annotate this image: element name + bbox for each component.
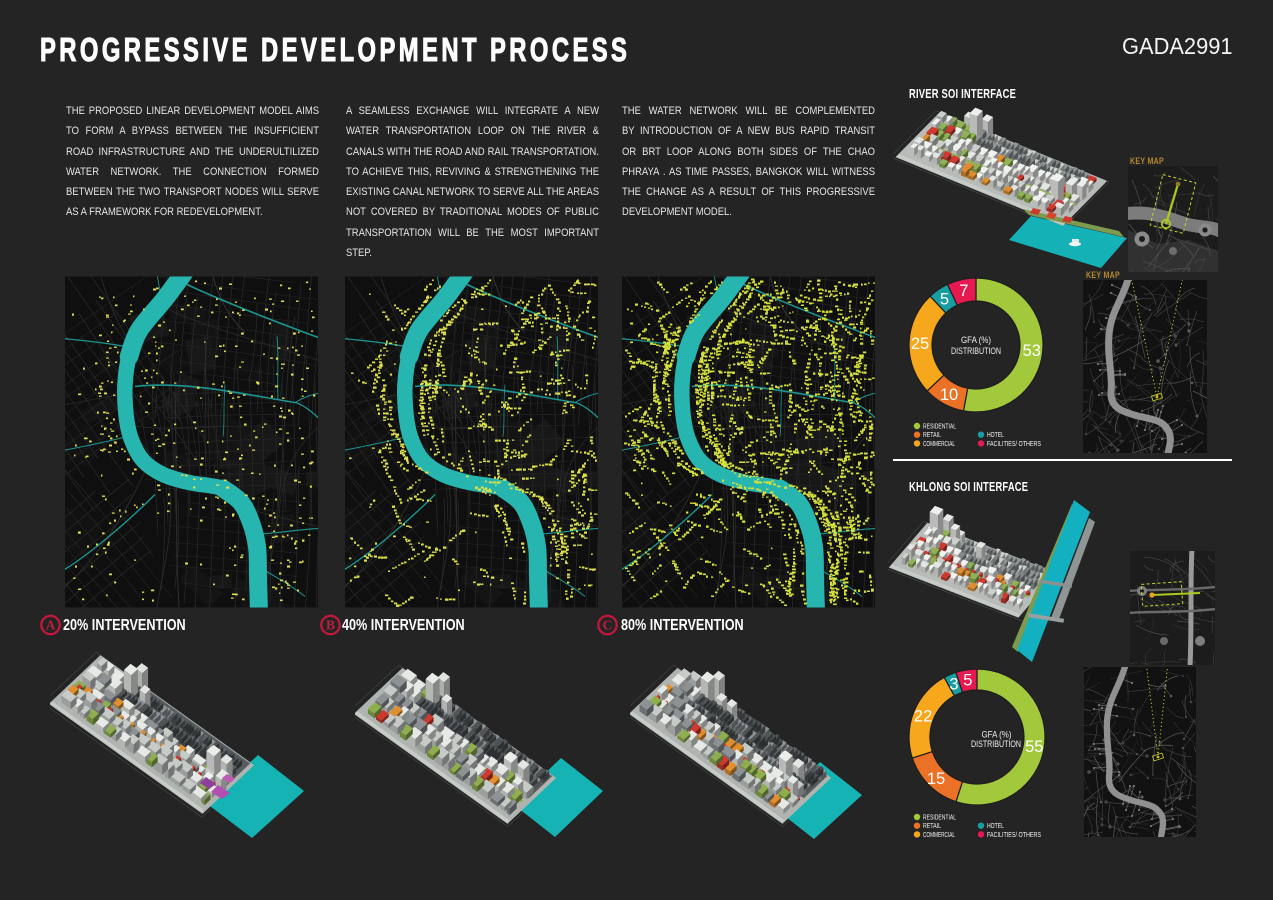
svg-text:3: 3 <box>949 676 958 694</box>
svg-text:COMMERCIAL: COMMERCIAL <box>923 441 955 448</box>
svg-text:C: C <box>603 618 613 633</box>
svg-text:55: 55 <box>1025 738 1043 756</box>
svg-text:5: 5 <box>963 672 972 690</box>
svg-text:7: 7 <box>959 282 968 300</box>
svg-text:25: 25 <box>911 335 929 353</box>
svg-text:10: 10 <box>940 386 958 404</box>
svg-text:15: 15 <box>927 770 945 788</box>
svg-text:DISTRIBUTION: DISTRIBUTION <box>951 346 1001 357</box>
svg-text:HOTEL: HOTEL <box>987 823 1004 830</box>
svg-text:RESIDENTIAL: RESIDENTIAL <box>923 424 956 431</box>
svg-text:FACILITIES/ OTHERS: FACILITIES/ OTHERS <box>987 832 1041 839</box>
svg-text:HOTEL: HOTEL <box>987 432 1004 439</box>
svg-text:DISTRIBUTION: DISTRIBUTION <box>971 739 1021 750</box>
svg-text:FACILITIES/ OTHERS: FACILITIES/ OTHERS <box>987 441 1041 448</box>
svg-text:RESIDENTIAL: RESIDENTIAL <box>923 815 956 822</box>
svg-text:5: 5 <box>940 291 949 309</box>
svg-text:RETAIL: RETAIL <box>923 432 941 439</box>
svg-text:GFA (%): GFA (%) <box>961 335 991 346</box>
svg-text:COMMERCIAL: COMMERCIAL <box>923 832 955 839</box>
svg-text:53: 53 <box>1023 342 1041 360</box>
svg-text:B: B <box>326 618 335 633</box>
svg-text:RETAIL: RETAIL <box>923 823 941 830</box>
svg-text:22: 22 <box>914 707 932 725</box>
svg-text:A: A <box>46 618 56 633</box>
